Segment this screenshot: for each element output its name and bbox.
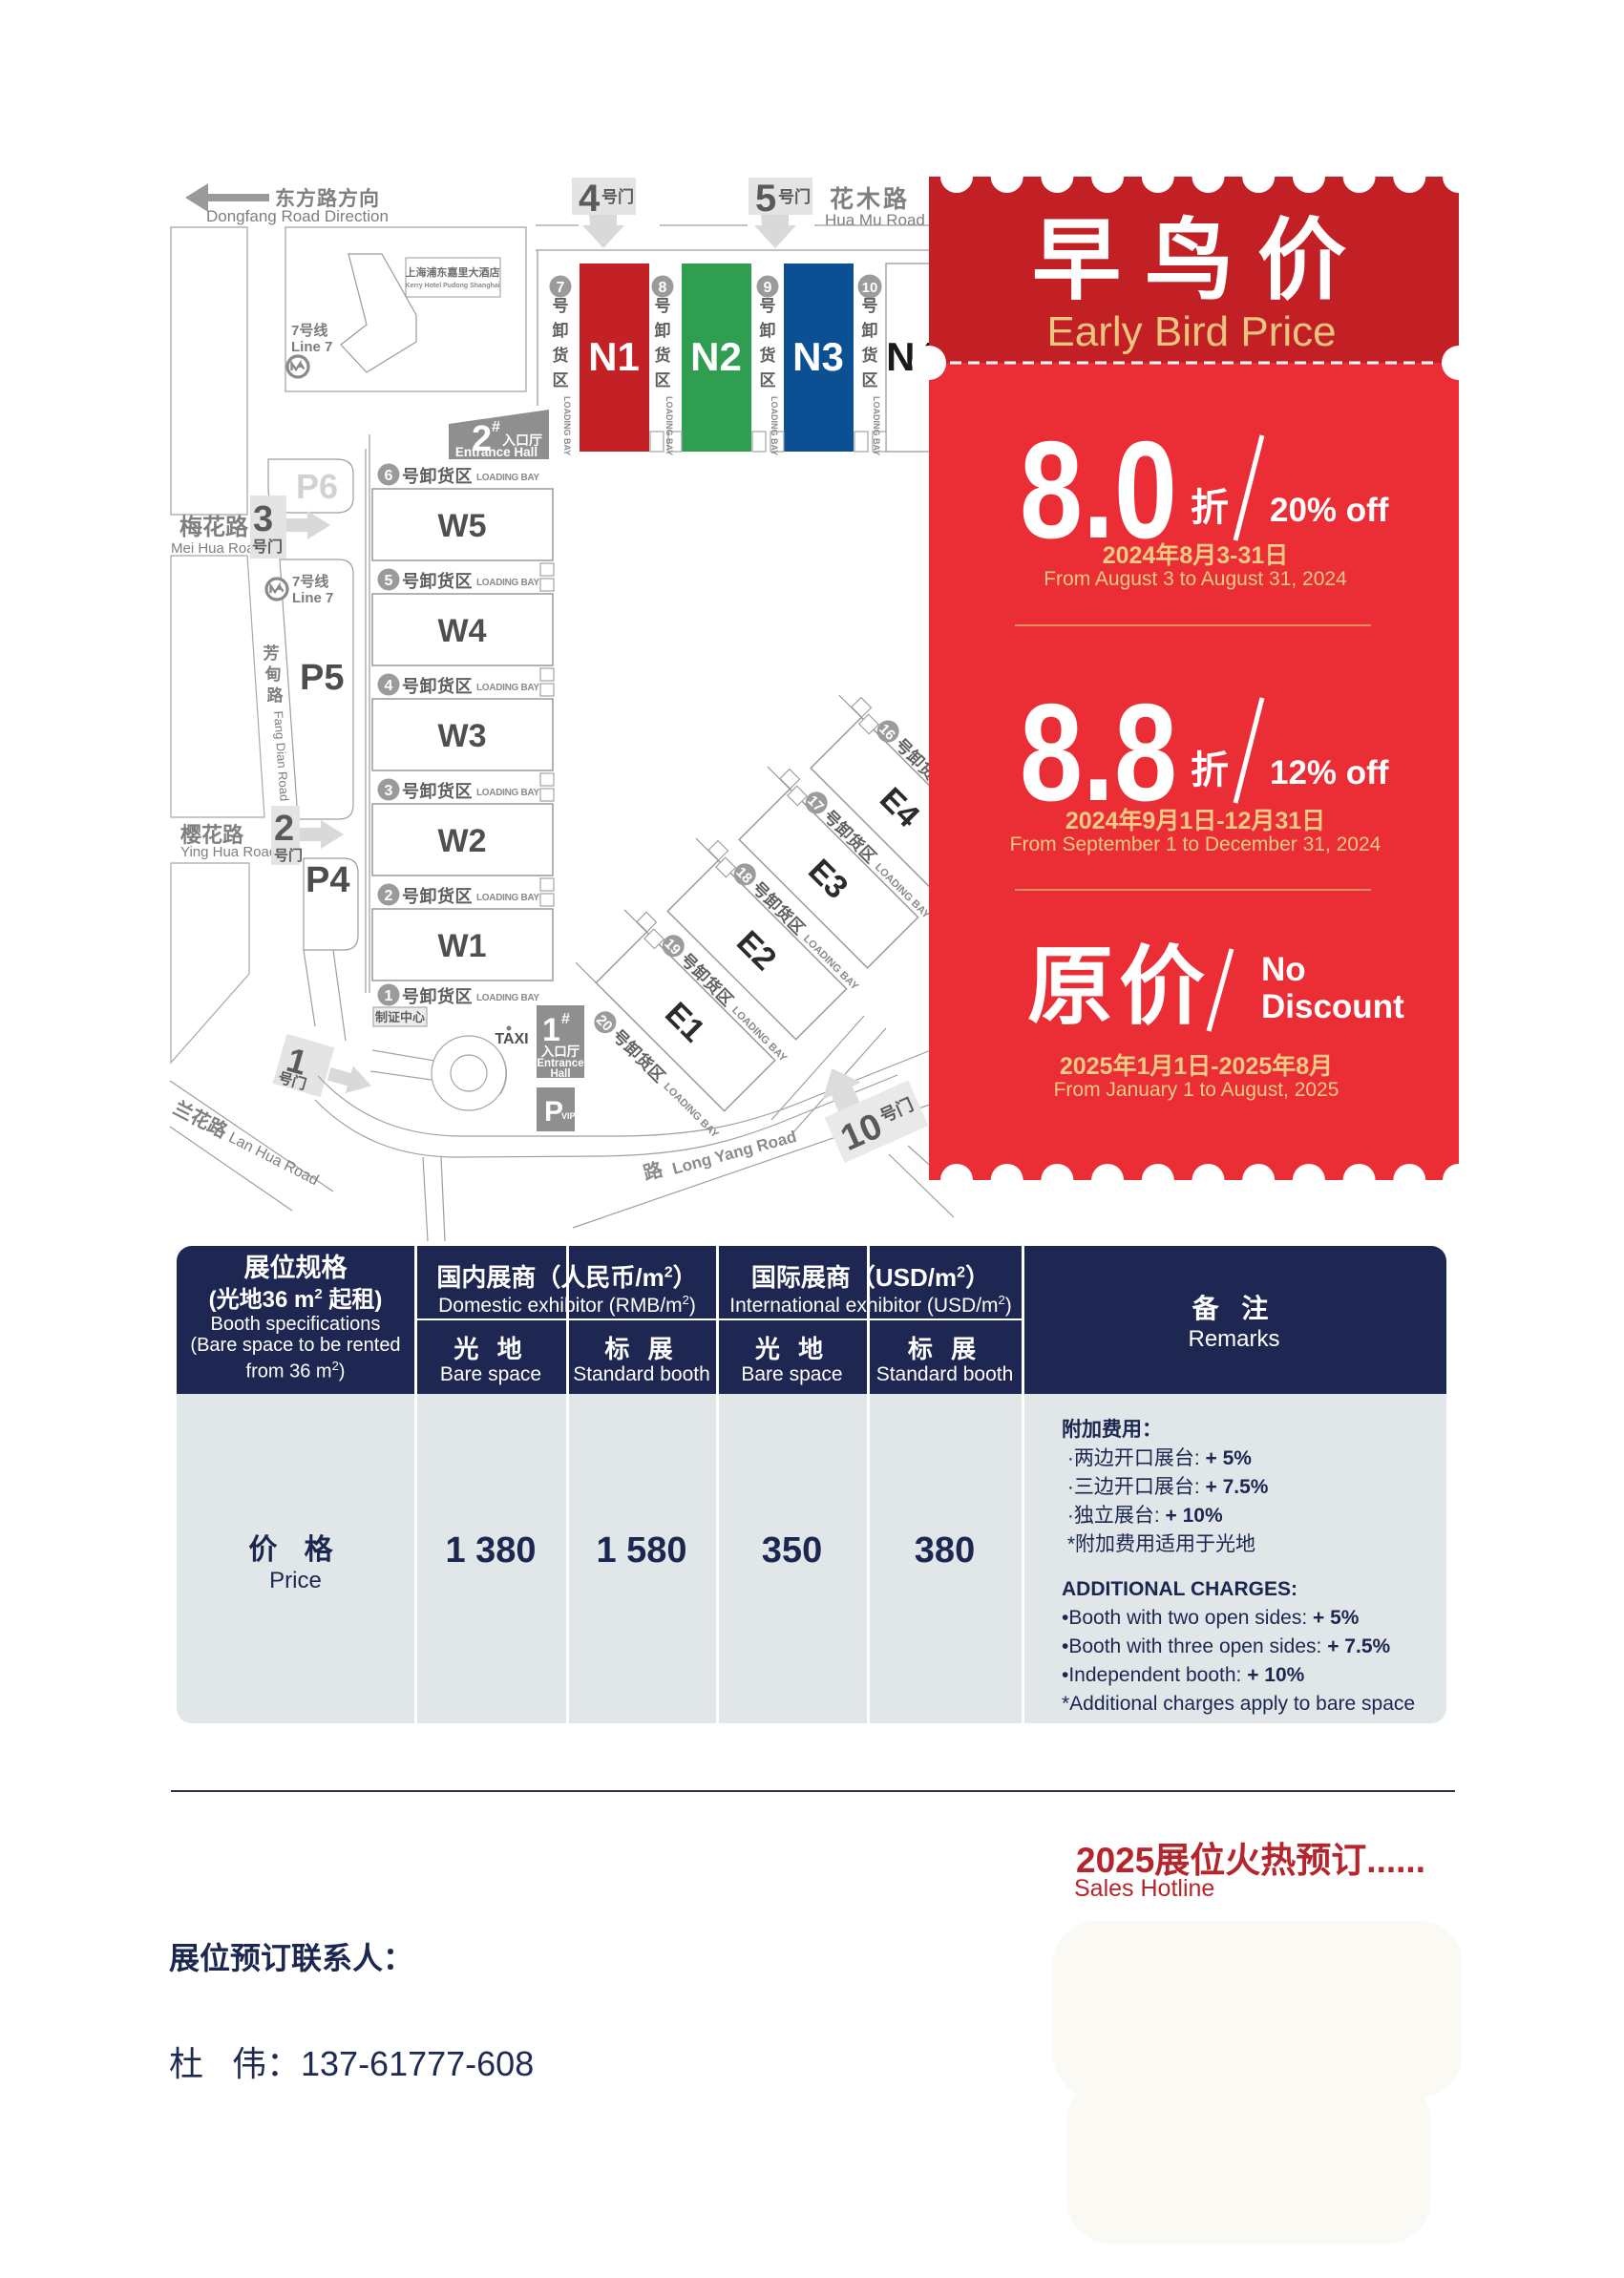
svg-text:号门: 号门 <box>778 187 811 206</box>
svg-text:1: 1 <box>385 988 393 1004</box>
svg-text:P: P <box>544 1096 563 1128</box>
svg-text:早鸟价: 早鸟价 <box>1032 211 1370 310</box>
svg-text:LOADING BAY: LOADING BAY <box>476 578 539 588</box>
svg-text:W1: W1 <box>438 928 487 964</box>
svg-text:#: # <box>492 419 500 435</box>
svg-text:Line 7: Line 7 <box>291 339 332 355</box>
svg-text:路: 路 <box>641 1157 665 1185</box>
svg-text:7: 7 <box>557 280 565 296</box>
svg-text:7号线: 7号线 <box>292 573 328 590</box>
svg-text:W3: W3 <box>438 718 487 754</box>
svg-text:2024年8月3-31日: 2024年8月3-31日 <box>1103 541 1289 569</box>
svg-text:N2: N2 <box>690 334 742 379</box>
svg-text:LOADING BAY: LOADING BAY <box>476 788 539 798</box>
svg-text:号卸货区: 号卸货区 <box>553 297 569 390</box>
svg-text:Mei Hua Road: Mei Hua Road <box>171 540 263 557</box>
svg-text:8: 8 <box>659 280 667 296</box>
svg-text:Fang Dian Road: Fang Dian Road <box>271 710 292 801</box>
svg-text:P6: P6 <box>296 467 338 506</box>
svg-text:制证中心: 制证中心 <box>375 1010 425 1024</box>
svg-text:花木路: 花木路 <box>830 186 910 213</box>
svg-text:芳甸路: 芳甸路 <box>264 643 285 705</box>
svg-text:1: 1 <box>542 1012 560 1048</box>
svg-text:5: 5 <box>755 178 776 220</box>
svg-text:Line 7: Line 7 <box>292 590 333 606</box>
svg-text:原价: 原价 <box>1027 939 1211 1035</box>
svg-text:LOADING BAY: LOADING BAY <box>562 396 572 455</box>
svg-text:2: 2 <box>274 809 294 849</box>
svg-text:2024年9月1日-12月31日: 2024年9月1日-12月31日 <box>1065 807 1325 834</box>
svg-text:号卸货区: 号卸货区 <box>402 886 473 906</box>
svg-text:Discount: Discount <box>1261 988 1404 1025</box>
svg-text:号卸货区: 号卸货区 <box>760 297 776 390</box>
svg-text:W5: W5 <box>438 508 487 544</box>
svg-text:W4: W4 <box>438 613 487 649</box>
svg-text:2: 2 <box>385 888 393 904</box>
svg-text:3: 3 <box>385 783 393 799</box>
svg-text:#: # <box>561 1011 570 1027</box>
svg-text:Entrance Hall: Entrance Hall <box>455 445 538 459</box>
svg-text:3: 3 <box>253 499 273 539</box>
svg-text:号卸货区: 号卸货区 <box>402 986 473 1006</box>
svg-text:号卸货区: 号卸货区 <box>402 571 473 591</box>
svg-text:Ying Hua Road: Ying Hua Road <box>180 844 277 860</box>
svg-text:8.8: 8.8 <box>1020 675 1177 830</box>
svg-text:号卸货区: 号卸货区 <box>862 297 878 390</box>
svg-text:7号线: 7号线 <box>291 322 327 339</box>
svg-text:Dongfang Road Direction: Dongfang Road Direction <box>206 207 389 225</box>
svg-text:W2: W2 <box>438 823 487 859</box>
svg-text:LOADING BAY: LOADING BAY <box>664 396 674 455</box>
svg-text:5: 5 <box>385 573 393 589</box>
svg-text:No: No <box>1261 951 1306 988</box>
svg-text:号门: 号门 <box>252 538 283 556</box>
svg-text:12% off: 12% off <box>1270 754 1389 791</box>
svg-text:From September 1 to December 3: From September 1 to December 31, 2024 <box>1010 833 1381 855</box>
svg-text:From August 3 to August 31, 20: From August 3 to August 31, 2024 <box>1044 568 1347 590</box>
svg-text:梅花路: 梅花路 <box>179 514 249 540</box>
svg-text:LOADING BAY: LOADING BAY <box>872 396 881 455</box>
svg-text:P5: P5 <box>300 658 344 698</box>
svg-text:折: 折 <box>1191 749 1229 791</box>
svg-text:N3: N3 <box>792 334 844 379</box>
svg-text:VIP: VIP <box>561 1111 576 1121</box>
svg-text:LOADING BAY: LOADING BAY <box>770 396 779 455</box>
svg-text:号卸货区: 号卸货区 <box>402 466 473 486</box>
svg-text:From January 1 to August, 2025: From January 1 to August, 2025 <box>1054 1079 1339 1101</box>
svg-text:号门: 号门 <box>274 847 303 864</box>
svg-text:LOADING BAY: LOADING BAY <box>476 683 539 693</box>
svg-text:号卸货区: 号卸货区 <box>402 781 473 801</box>
svg-text:号卸货区: 号卸货区 <box>655 297 671 390</box>
svg-text:10: 10 <box>862 280 878 296</box>
svg-text:上海浦东嘉里大酒店: 上海浦东嘉里大酒店 <box>406 265 500 279</box>
svg-text:6: 6 <box>385 468 393 484</box>
svg-text:TAXI: TAXI <box>495 1031 528 1047</box>
svg-text:LOADING BAY: LOADING BAY <box>476 473 539 483</box>
svg-text:Long Yang Road: Long Yang Road <box>670 1128 798 1178</box>
svg-text:Hua Mu Road: Hua Mu Road <box>825 211 925 229</box>
svg-text:P4: P4 <box>306 860 349 900</box>
svg-text:4: 4 <box>579 178 601 220</box>
svg-text:LOADING BAY: LOADING BAY <box>476 893 539 903</box>
svg-text:9: 9 <box>764 280 772 296</box>
svg-text:4: 4 <box>385 678 393 694</box>
svg-text:折: 折 <box>1191 487 1229 529</box>
svg-text:20% off: 20% off <box>1270 492 1389 529</box>
svg-text:Early Bird Price: Early Bird Price <box>1046 308 1336 355</box>
svg-text:Kerry Hotel Pudong Shanghai: Kerry Hotel Pudong Shanghai <box>405 283 499 289</box>
svg-text:2025年1月1日-2025年8月: 2025年1月1日-2025年8月 <box>1060 1052 1333 1080</box>
svg-text:N1: N1 <box>588 334 640 379</box>
svg-text:LOADING BAY: LOADING BAY <box>476 993 539 1003</box>
svg-text:入口厅: 入口厅 <box>541 1044 580 1059</box>
svg-text:号卸货区: 号卸货区 <box>402 676 473 696</box>
svg-text:Hall: Hall <box>550 1068 570 1080</box>
svg-text:号门: 号门 <box>601 187 634 206</box>
